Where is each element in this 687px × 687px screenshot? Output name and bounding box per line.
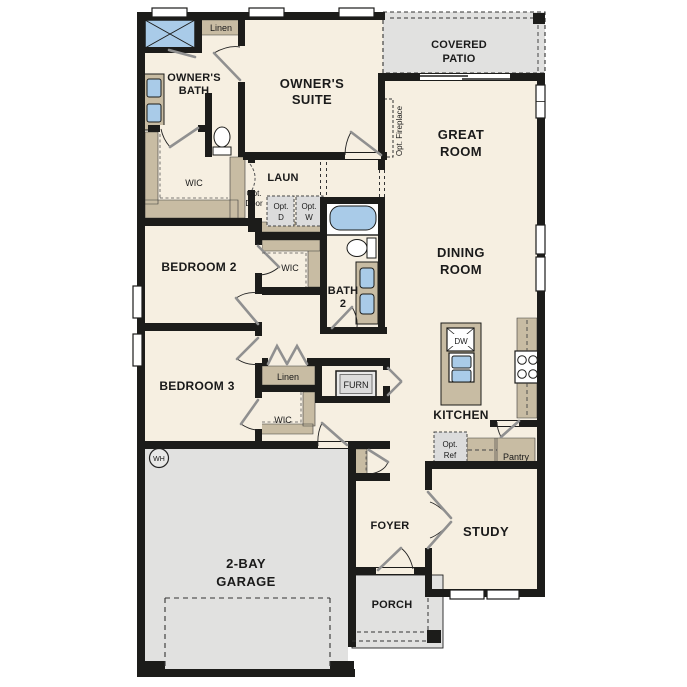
owners-bath-sink-2 xyxy=(147,104,161,122)
opt-door-label-line2: Door xyxy=(245,199,263,208)
opt-washer-label-line2: W xyxy=(305,213,313,222)
dishwasher-label: DW xyxy=(454,337,468,346)
bath2-label-line2: 2 xyxy=(340,298,346,310)
window xyxy=(133,334,142,366)
garage-label-line1: 2-BAY xyxy=(226,556,266,571)
range-stove xyxy=(515,351,540,383)
opt-ref-label-line2: Ref xyxy=(444,451,457,460)
window xyxy=(249,8,284,17)
furnace-label: FURN xyxy=(344,380,369,390)
bedroom3-label: BEDROOM 3 xyxy=(159,379,234,393)
pantry-label: Pantry xyxy=(503,452,530,462)
laundry-label: LAUN xyxy=(267,172,298,184)
foyer-label: FOYER xyxy=(371,520,410,532)
bath2-toilet-tank xyxy=(367,238,376,258)
great-room-label-line2: ROOM xyxy=(440,144,482,159)
owners-bath-sink-1 xyxy=(147,79,161,97)
study-label: STUDY xyxy=(463,524,509,539)
linen-hall-label: Linen xyxy=(277,372,299,382)
wic-bed2-label: WIC xyxy=(281,263,299,273)
owners-toilet-bowl xyxy=(214,127,230,147)
window xyxy=(152,8,187,17)
porch-column xyxy=(427,630,441,643)
bath2-toilet-bowl xyxy=(347,240,367,257)
porch-label: PORCH xyxy=(372,599,413,611)
opt-dryer-label-line1: Opt. xyxy=(273,202,288,211)
dining-room-label-line1: DINING xyxy=(437,245,485,260)
opt-ref-label-line1: Opt. xyxy=(442,440,457,449)
bath2-sink-2 xyxy=(360,294,374,314)
window xyxy=(536,257,545,291)
covered-patio-label-line2: PATIO xyxy=(443,53,476,65)
kitchen-sink-basin-1 xyxy=(452,356,471,368)
covered-patio-label-line1: COVERED xyxy=(431,39,487,51)
great-room-label-line1: GREAT xyxy=(438,127,485,142)
dining-room-label-line2: ROOM xyxy=(440,262,482,277)
linen-top-label: Linen xyxy=(210,23,232,33)
wic-owner-label: WIC xyxy=(185,178,203,188)
opt-washer-label-line1: Opt. xyxy=(301,202,316,211)
owners-bath-label-line1: OWNER'S xyxy=(167,72,221,84)
opt-fireplace-label: Opt. Fireplace xyxy=(395,105,404,156)
owners-toilet-tank xyxy=(213,147,231,155)
wic-bed3-label: WIC xyxy=(274,415,292,425)
bedroom2-label: BEDROOM 2 xyxy=(161,260,236,274)
bath2-sink-1 xyxy=(360,268,374,288)
kitchen-label: KITCHEN xyxy=(433,408,488,422)
window xyxy=(339,8,374,17)
opt-door-label-line1: Opt. xyxy=(246,189,261,198)
window xyxy=(450,590,484,599)
floor-plan-svg: OWNER'S SUITE OWNER'S BATH COVERED PATIO… xyxy=(0,0,687,687)
bath2-tub xyxy=(330,206,376,230)
patio-corner-post xyxy=(533,13,545,24)
window xyxy=(133,286,142,318)
opt-dryer-label-line2: D xyxy=(278,213,284,222)
owners-suite-label-line2: SUITE xyxy=(292,92,332,107)
window xyxy=(487,590,519,599)
kitchen-sink-basin-2 xyxy=(452,370,471,382)
owners-suite-label-line1: OWNER'S xyxy=(280,76,344,91)
window xyxy=(536,225,545,254)
garage-label-line2: GARAGE xyxy=(216,574,275,589)
owners-bath-label-line2: BATH xyxy=(179,85,210,97)
floor-plan-page: OWNER'S SUITE OWNER'S BATH COVERED PATIO… xyxy=(0,0,687,687)
bath2-label-line1: BATH xyxy=(328,285,359,297)
water-heater-label: WH xyxy=(153,456,165,463)
